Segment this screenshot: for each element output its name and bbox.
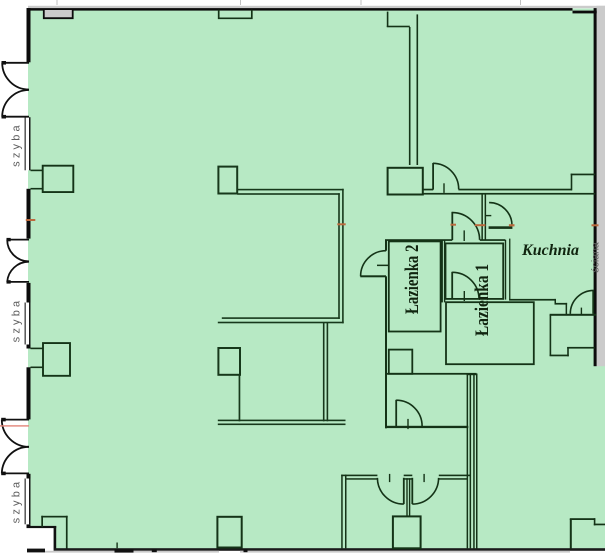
svg-text:Łazienka 1: Łazienka 1 <box>472 264 493 336</box>
svg-text:szyba: szyba <box>11 122 23 167</box>
svg-text:Kuchnia: Kuchnia <box>521 242 579 259</box>
svg-text:szyba: szyba <box>11 479 23 524</box>
svg-text:ściana: ściana <box>590 242 602 273</box>
svg-text:szyba: szyba <box>11 298 23 343</box>
svg-text:Łazienka 2: Łazienka 2 <box>402 245 423 315</box>
